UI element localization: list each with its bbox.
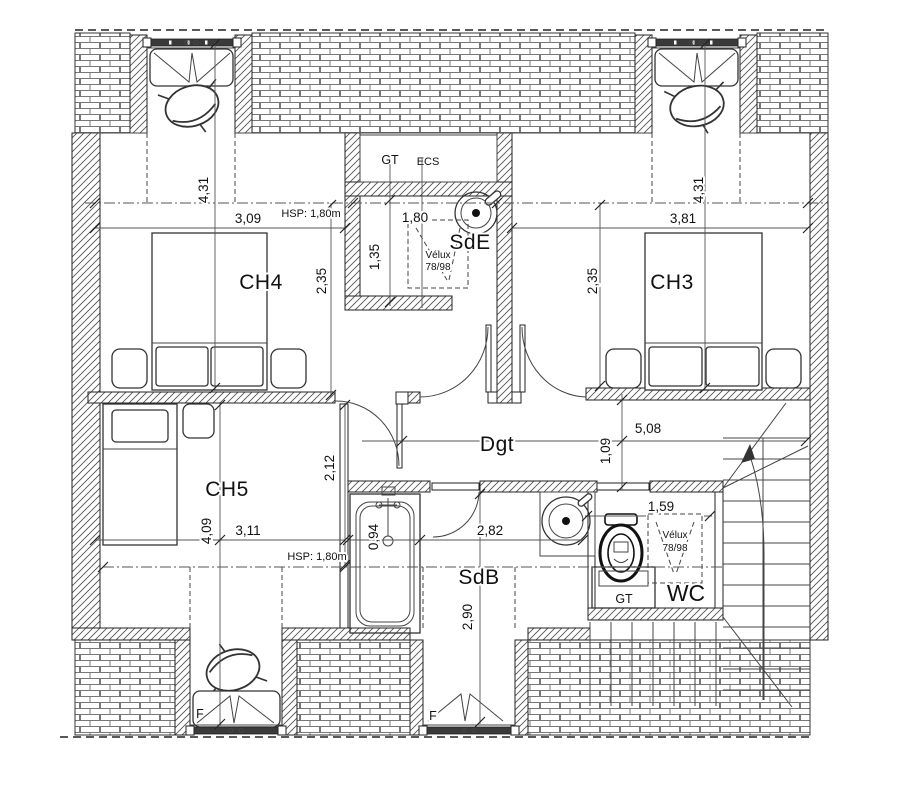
dim-ch4-width: 3,09 bbox=[235, 211, 261, 226]
armchair-icon bbox=[664, 79, 733, 140]
bed-single-ch5 bbox=[103, 404, 214, 545]
room-label-sdb: SdB bbox=[458, 566, 499, 589]
dormer-bottom-left: F bbox=[186, 633, 286, 735]
stair-winder-lines bbox=[723, 403, 808, 488]
velux-size-label: 78/98 bbox=[662, 543, 687, 554]
dormer-bottom-middle: F bbox=[419, 694, 519, 735]
dim-tub-width: 0,94 bbox=[366, 523, 381, 550]
window-f-label: F bbox=[196, 707, 204, 721]
velux-wc: Vélux 78/98 bbox=[648, 514, 702, 583]
room-label-dgt: Dgt bbox=[480, 433, 514, 456]
pillow bbox=[211, 347, 263, 386]
nightstand bbox=[766, 349, 801, 388]
dim-ch5-wall: 2,12 bbox=[322, 455, 337, 481]
velux-size-label: 78/98 bbox=[425, 262, 450, 273]
room-label-ch5: CH5 bbox=[205, 478, 249, 501]
armchair-icon bbox=[195, 633, 268, 699]
ecs-label: ECS bbox=[417, 156, 440, 168]
dim-dgt-length: 5,08 bbox=[635, 421, 661, 436]
nightstand bbox=[112, 349, 147, 388]
nightstand bbox=[183, 404, 214, 438]
bathtub-icon bbox=[350, 487, 420, 633]
room-gt-ecs: GT ECS bbox=[360, 135, 497, 182]
dim-sdb-depth: 2,90 bbox=[460, 604, 475, 630]
velux-label: Vélux bbox=[425, 250, 450, 261]
dim-sde-width: 1,80 bbox=[402, 210, 428, 225]
bed-double-ch3 bbox=[606, 233, 801, 390]
room-label-ch4: CH4 bbox=[239, 271, 283, 294]
dim-ch3-side: 2,35 bbox=[585, 268, 600, 294]
dim-ch4-depth: 4,31 bbox=[196, 177, 211, 203]
door-arc-sdb bbox=[433, 492, 479, 537]
dim-ch3-depth: 4,31 bbox=[691, 177, 706, 203]
gt-wc-label: GT bbox=[615, 592, 633, 606]
door-leaf-sdb bbox=[432, 483, 479, 490]
floor-plan-page: GT ECS F F bbox=[0, 0, 911, 800]
window-swing-icon bbox=[428, 694, 503, 721]
door-leaf-ch5 bbox=[397, 404, 402, 468]
door-arc-ch3 bbox=[522, 327, 586, 397]
door-arc-ch4 bbox=[420, 327, 488, 397]
pillow bbox=[706, 347, 759, 386]
window-f-label: F bbox=[429, 709, 437, 723]
dim-sde-depth: 1,35 bbox=[367, 244, 382, 270]
nightstand bbox=[606, 349, 641, 388]
note-hsp-bottom: HSP: 1,80m bbox=[287, 551, 346, 563]
door-leaf-ch4 bbox=[486, 325, 491, 392]
dormer-top-left bbox=[143, 38, 241, 143]
dim-dgt-width: 1,09 bbox=[598, 438, 613, 464]
room-label-sde: SdE bbox=[449, 231, 490, 254]
velux-label: Vélux bbox=[662, 530, 687, 541]
dim-ch3-width: 3,81 bbox=[670, 211, 696, 226]
pillow bbox=[649, 347, 702, 386]
gt-closet-wc: GT bbox=[592, 567, 655, 608]
room-label-ch3: CH3 bbox=[650, 271, 694, 294]
nightstand bbox=[271, 349, 306, 388]
washbasin-sdb-icon bbox=[540, 492, 595, 556]
dim-ch4-side: 2,35 bbox=[314, 268, 329, 294]
dormer-top-right bbox=[648, 38, 746, 140]
note-hsp-top: HSP: 1,80m bbox=[281, 208, 340, 220]
dim-sdb-width: 2,82 bbox=[477, 523, 503, 538]
dim-ch5-depth: 4,09 bbox=[199, 518, 214, 544]
pillow bbox=[156, 347, 208, 386]
bed-double-ch4 bbox=[112, 233, 306, 390]
pillow bbox=[112, 410, 168, 442]
room-label-wc: WC bbox=[667, 580, 705, 606]
dim-wc-width: 1,59 bbox=[648, 499, 674, 514]
floor-plan-canvas: GT ECS F F bbox=[0, 0, 911, 800]
dim-ch5-width: 3,11 bbox=[235, 523, 260, 538]
